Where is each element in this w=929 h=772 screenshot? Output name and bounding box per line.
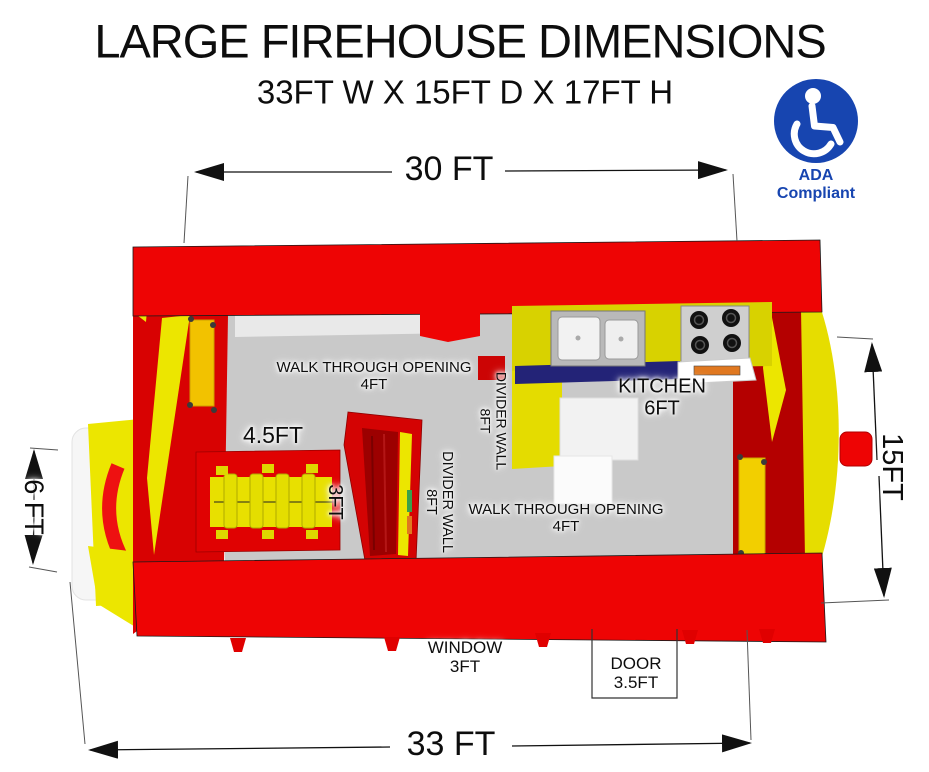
bottom-wall bbox=[133, 553, 826, 642]
stove bbox=[678, 306, 756, 384]
window-label: WINDOW 3FT bbox=[428, 638, 503, 676]
dim-left-label: 6 FT bbox=[19, 479, 49, 535]
divider-wall-upper-label: DIVIDER WALL 8FT bbox=[477, 372, 508, 470]
page-subtitle: 33FT W X 15FT D X 17FT H bbox=[257, 75, 673, 112]
dim-bottom-label: 33 FT bbox=[407, 725, 496, 763]
door-label: DOOR 3.5FT bbox=[611, 654, 662, 692]
dim-top-label: 30 FT bbox=[405, 150, 494, 188]
kitchen-label: KITCHEN 6FT bbox=[618, 376, 706, 421]
wheelchair-icon bbox=[771, 76, 861, 166]
right-knob bbox=[840, 432, 872, 466]
ada-badge: ADA Compliant bbox=[770, 76, 862, 203]
page-title: LARGE FIREHOUSE DIMENSIONS bbox=[94, 16, 825, 69]
divider-wall-lower-label: DIVIDER WALL 8FT bbox=[423, 451, 455, 553]
bench-width-label: 4.5FT bbox=[243, 423, 303, 449]
right-window-shade bbox=[739, 458, 765, 554]
bench-depth-label: 3FT bbox=[324, 484, 346, 520]
walk-through-opening-bottom-label: WALK THROUGH OPENING 4FT bbox=[468, 502, 663, 536]
oven-handle bbox=[694, 366, 740, 375]
kitchen-cabinet-lower bbox=[554, 456, 612, 504]
dim-right-label: 15FT bbox=[876, 433, 908, 501]
sink bbox=[551, 311, 645, 366]
ada-badge-label: ADA Compliant bbox=[770, 167, 862, 203]
left-window-shade bbox=[190, 320, 214, 406]
top-wall-tab bbox=[420, 311, 480, 342]
outer-corner-bottom-left bbox=[88, 546, 137, 628]
gear-bench bbox=[196, 450, 340, 552]
walk-through-opening-top-label: WALK THROUGH OPENING 4FT bbox=[276, 360, 471, 394]
